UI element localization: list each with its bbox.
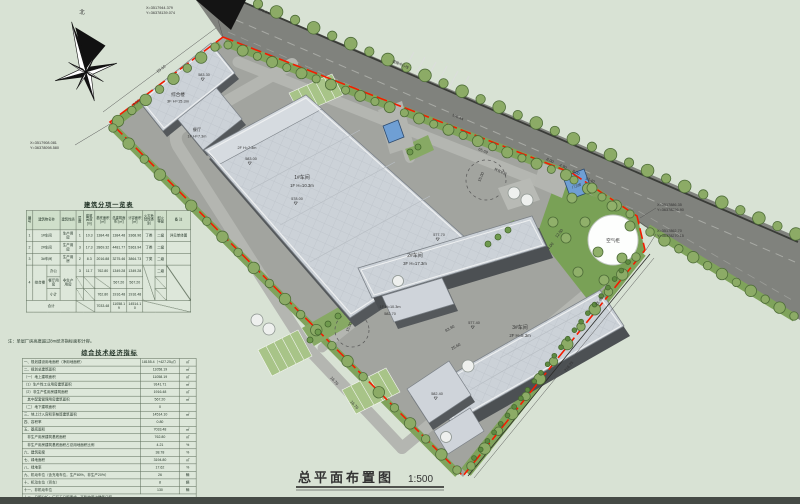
table-cell: 2016.88 bbox=[95, 253, 111, 265]
table-cell: 11058.19 bbox=[111, 300, 127, 312]
table-cell: 耐火等级 bbox=[155, 211, 166, 230]
tree-icon bbox=[518, 154, 526, 162]
tree-icon bbox=[128, 106, 137, 115]
table-cell: 0 bbox=[141, 404, 180, 412]
tree-icon bbox=[513, 110, 522, 119]
table-cell: （1）生产性工业用房建筑面积 bbox=[22, 381, 140, 389]
building-list-table: 编号建筑物名称建筑性质层数建筑高度 [m]基底面积 [㎡]总建筑面积 [㎡]计容… bbox=[26, 210, 191, 312]
table-cell: （一）地上建筑面积 bbox=[22, 374, 140, 382]
table-cell: 4481.77 bbox=[111, 242, 127, 254]
table-cell: 总建筑面积 [㎡] bbox=[111, 211, 127, 230]
table-cell: 2#车间 bbox=[33, 242, 60, 254]
table-cell: 1349.28 bbox=[127, 265, 143, 277]
tree-icon bbox=[675, 245, 684, 254]
tree-icon bbox=[545, 362, 550, 367]
tree-icon bbox=[505, 227, 511, 233]
table-cell: 层数 bbox=[76, 211, 84, 230]
tree-icon bbox=[414, 113, 425, 124]
tree-icon bbox=[325, 321, 331, 327]
tree-icon bbox=[443, 124, 454, 135]
tree-icon bbox=[774, 302, 786, 314]
table-cell: 9141.71 bbox=[141, 381, 180, 389]
tree-icon bbox=[315, 329, 321, 335]
table-cell: 1384.48 bbox=[95, 230, 111, 242]
tree-icon bbox=[472, 136, 483, 147]
label-workshop-3: 3#车间 bbox=[512, 324, 528, 331]
table-cell: 基底面积 [㎡] bbox=[95, 211, 111, 230]
tree-icon bbox=[248, 262, 260, 274]
svg-text:Y=36378270.15: Y=36378270.15 bbox=[657, 234, 684, 238]
table-cell bbox=[179, 404, 196, 412]
tree-icon bbox=[561, 233, 571, 243]
table-cell: % bbox=[179, 441, 196, 449]
table-cell bbox=[155, 277, 166, 289]
table-cell: 7033.48 bbox=[141, 426, 180, 434]
tree-icon bbox=[512, 404, 517, 409]
table-cell: 生产用房 bbox=[60, 242, 76, 254]
table-cell: 1349.28 bbox=[111, 265, 127, 277]
tree-icon bbox=[224, 41, 232, 49]
table-cell: 丁类 bbox=[143, 242, 155, 254]
label-workshop-1: 1#车间 bbox=[294, 174, 310, 181]
tree-icon bbox=[307, 21, 320, 34]
tree-icon bbox=[607, 201, 617, 211]
tree-icon bbox=[624, 158, 633, 167]
table-cell: 丁类 bbox=[143, 253, 155, 265]
table-cell: 8.3 bbox=[84, 253, 95, 265]
table-cell: 小计 bbox=[47, 289, 60, 301]
table-cell: ㎡ bbox=[179, 411, 196, 419]
table-cell: 762.80 bbox=[95, 265, 111, 277]
table-cell: 567.20 bbox=[127, 277, 143, 289]
table-cell bbox=[166, 242, 190, 254]
table-cell: 其中配套管理用房建筑面积 bbox=[22, 396, 140, 404]
tree-icon bbox=[646, 228, 655, 237]
table-cell: 762.80 bbox=[95, 289, 111, 301]
table-cell: 1916.48 bbox=[111, 289, 127, 301]
table-cell: 生产用房 bbox=[60, 253, 76, 265]
tree-icon bbox=[573, 267, 583, 277]
table-cell: 130 bbox=[141, 486, 180, 494]
tree-icon bbox=[328, 31, 337, 40]
table-cell: （二）地下建筑面积 bbox=[22, 404, 140, 412]
tree-icon bbox=[488, 143, 496, 151]
table-cell: ㎡ bbox=[179, 381, 196, 389]
table-cell: % bbox=[179, 464, 196, 472]
tree-icon bbox=[604, 148, 617, 161]
table-cell bbox=[143, 265, 155, 300]
table-cell: 3864.73 bbox=[127, 253, 143, 265]
svg-text:55.10: 55.10 bbox=[156, 63, 168, 74]
table-cell: 辆 bbox=[179, 471, 196, 479]
table-cell: 7033.48 bbox=[95, 300, 111, 312]
table-cell: 2869.32 bbox=[95, 242, 111, 254]
tree-icon bbox=[505, 413, 510, 418]
tree-icon bbox=[753, 212, 766, 225]
tree-icon bbox=[312, 75, 320, 83]
tree-icon bbox=[267, 56, 278, 67]
table-cell: 计容面积 [㎡] bbox=[127, 211, 143, 230]
tree-icon bbox=[456, 85, 469, 98]
building-list-block: 建筑分项一览表 编号建筑物名称建筑性质层数建筑高度 [m]基底面积 [㎡]总建筑… bbox=[26, 200, 191, 312]
table-cell: 3194.80 bbox=[141, 456, 180, 464]
table-cell: 18155.4（+427.25㎡） bbox=[141, 359, 180, 367]
tree-icon bbox=[485, 241, 491, 247]
table-cell: 七、绿地面积 bbox=[22, 456, 140, 464]
tree-icon bbox=[550, 126, 559, 135]
table-cell: 辆 bbox=[179, 486, 196, 494]
svg-text:582.40: 582.40 bbox=[431, 392, 443, 396]
tree-icon bbox=[567, 193, 577, 203]
tree-icon bbox=[593, 247, 603, 257]
table-cell: 11058.19 bbox=[141, 366, 180, 374]
table-cell: 火灾危险性类别 bbox=[143, 211, 155, 230]
table-cell: 五、基底面积 bbox=[22, 426, 140, 434]
table-cell: 九、机动车位（含充电车位，生产80%，非生产20%） bbox=[22, 471, 140, 479]
tree-icon bbox=[525, 387, 530, 392]
table-cell: 17.3 bbox=[84, 242, 95, 254]
table-cell: （2）非生产性用房建筑面积 bbox=[22, 389, 140, 397]
tree-icon bbox=[472, 456, 477, 461]
table-cell bbox=[76, 289, 84, 301]
table-cell: 餐厅用房 bbox=[47, 277, 60, 289]
table-cell: 八、绿地率 bbox=[22, 464, 140, 472]
table-cell: 3275.46 bbox=[111, 253, 127, 265]
tree-icon bbox=[183, 64, 192, 73]
tree-icon bbox=[270, 6, 283, 19]
tree-icon bbox=[123, 138, 135, 150]
table-cell: 1916.48 bbox=[127, 289, 143, 301]
bottom-bar bbox=[0, 497, 800, 504]
svg-text:1F H=10.3m: 1F H=10.3m bbox=[290, 183, 314, 188]
tree-icon bbox=[687, 251, 699, 263]
tree-icon bbox=[570, 176, 578, 184]
table-cell: 合计 bbox=[26, 300, 76, 312]
table-cell: 建筑性质 bbox=[60, 211, 76, 230]
table-cell bbox=[143, 300, 191, 312]
table-cell: 四、容积率 bbox=[22, 419, 140, 427]
indicators-table: 一、规划建设用地面积（净用地面积）18155.4（+427.25㎡）㎡二、规划总… bbox=[22, 358, 196, 501]
table-cell: 十一、非机动车位 bbox=[22, 486, 140, 494]
tree-icon bbox=[341, 86, 349, 94]
tree-icon bbox=[296, 68, 307, 79]
building-list-title: 建筑分项一览表 bbox=[26, 200, 191, 209]
tree-icon bbox=[547, 165, 555, 173]
sheet-title-scale: 1:500 bbox=[408, 474, 433, 485]
sheet-title-text: 总平面布置图 bbox=[298, 470, 394, 485]
tree-icon bbox=[476, 94, 485, 103]
table-cell: 二级 bbox=[155, 265, 166, 277]
tree-icon bbox=[253, 52, 261, 60]
table-cell: 辆 bbox=[179, 479, 196, 487]
tree-icon bbox=[492, 430, 497, 435]
tree-icon bbox=[531, 158, 542, 169]
table-cell: 4 bbox=[26, 265, 33, 300]
tree-icon bbox=[265, 279, 274, 288]
tree-icon bbox=[612, 277, 617, 282]
tree-icon bbox=[415, 144, 421, 150]
tree-icon bbox=[625, 221, 635, 231]
tree-icon bbox=[404, 418, 416, 430]
indicators-block: 综合技术经济指标 一、规划建设用地面积（净用地面积）18155.4（+427.2… bbox=[22, 348, 197, 502]
tree-icon bbox=[598, 193, 606, 201]
table-cell: 十、机动车位（货车） bbox=[22, 479, 140, 487]
table-cell: 11058.19 bbox=[141, 374, 180, 382]
table-cell: 14514.10 bbox=[127, 300, 143, 312]
table-cell bbox=[76, 300, 95, 312]
table-cell: 4.21 bbox=[141, 441, 180, 449]
tree-icon bbox=[237, 45, 248, 56]
sheet-title: 总平面布置图 1:500 bbox=[296, 470, 444, 490]
svg-text:1F H=7.3m: 1F H=7.3m bbox=[188, 135, 207, 139]
tree-icon bbox=[579, 319, 584, 324]
tree-icon bbox=[565, 336, 570, 341]
tree-icon bbox=[761, 295, 770, 304]
table-cell: 三、地上计入容积率核算建筑面积 bbox=[22, 411, 140, 419]
table-cell: 10.3 bbox=[84, 230, 95, 242]
table-cell bbox=[84, 277, 95, 289]
tree-icon bbox=[745, 285, 757, 297]
tree-icon bbox=[567, 133, 580, 146]
tree-icon bbox=[155, 85, 164, 94]
tree-icon bbox=[715, 196, 728, 209]
tree-icon bbox=[168, 73, 180, 85]
tree-icon bbox=[195, 52, 207, 64]
tree-icon bbox=[580, 217, 590, 227]
svg-text:X=3517944.379: X=3517944.379 bbox=[146, 6, 173, 10]
tree-icon bbox=[234, 248, 243, 257]
svg-text:Y=36378139.074: Y=36378139.074 bbox=[146, 11, 175, 15]
table-cell: 非生产用房建筑基底面积 bbox=[22, 434, 140, 442]
table-cell: ㎡ bbox=[179, 426, 196, 434]
tree-icon bbox=[732, 278, 741, 287]
tree-icon bbox=[140, 155, 149, 164]
table-cell: 综合楼 bbox=[33, 265, 47, 300]
tree-icon bbox=[355, 90, 366, 101]
svg-text:583.00: 583.00 bbox=[245, 157, 257, 161]
tree-icon bbox=[419, 69, 432, 82]
table-cell: 38.78 bbox=[141, 449, 180, 457]
table-cell bbox=[76, 277, 84, 289]
table-cell: 1916.48 bbox=[141, 389, 180, 397]
table-cell: ㎡ bbox=[179, 396, 196, 404]
table-cell: 二、规划总建筑面积 bbox=[22, 366, 140, 374]
tree-icon bbox=[736, 206, 745, 215]
table-cell: 26 bbox=[141, 471, 180, 479]
table-cell: 567.20 bbox=[111, 277, 127, 289]
table-cell: % bbox=[179, 449, 196, 457]
tree-icon bbox=[430, 120, 438, 128]
tree-icon bbox=[502, 147, 513, 158]
table-cell: 1 bbox=[26, 230, 33, 242]
table-cell: 3 bbox=[76, 242, 84, 254]
tree-icon bbox=[436, 449, 448, 461]
table-cell: 762.80 bbox=[141, 434, 180, 442]
tree-icon bbox=[790, 228, 800, 241]
tree-icon bbox=[171, 186, 180, 195]
tree-icon bbox=[328, 341, 337, 350]
table-cell: 11.7 bbox=[84, 265, 95, 277]
table-cell: 1#车间 bbox=[33, 230, 60, 242]
table-cell bbox=[166, 253, 190, 265]
tree-icon bbox=[390, 404, 399, 413]
svg-text:577.40: 577.40 bbox=[468, 321, 480, 325]
svg-text:582.70: 582.70 bbox=[384, 312, 396, 316]
tree-icon bbox=[203, 217, 212, 226]
tree-icon bbox=[154, 169, 166, 181]
tree-icon bbox=[371, 97, 379, 105]
site-plan-sheet: 空气柜 门卫房 55.10 9.50 65.69 216.25 16.79 16… bbox=[0, 0, 800, 504]
tree-icon bbox=[400, 109, 408, 117]
tree-icon bbox=[552, 353, 557, 358]
tree-icon bbox=[549, 357, 558, 366]
tree-icon bbox=[619, 268, 624, 273]
table-cell: 二级 bbox=[155, 253, 166, 265]
svg-text:2F H=8.3m: 2F H=8.3m bbox=[509, 333, 531, 338]
table-cell: 非生产用房 bbox=[60, 265, 76, 300]
table-cell: 丁类 bbox=[143, 230, 155, 242]
indicators-title: 综合技术经济指标 bbox=[22, 348, 197, 357]
north-compass: 北 bbox=[41, 8, 125, 110]
tree-icon bbox=[626, 210, 634, 218]
svg-text:1F H=10.3m: 1F H=10.3m bbox=[380, 305, 401, 309]
table-cell bbox=[155, 289, 166, 301]
table-cell: 二级 bbox=[155, 230, 166, 242]
air-tank-label: 空气柜 bbox=[606, 237, 620, 244]
table-cell: 3368.96 bbox=[127, 230, 143, 242]
table-cell: 14514.10 bbox=[141, 411, 180, 419]
tree-icon bbox=[493, 101, 506, 114]
tree-icon bbox=[211, 43, 220, 52]
tree-icon bbox=[485, 439, 490, 444]
tree-icon bbox=[453, 466, 462, 475]
table-cell: 1 bbox=[76, 230, 84, 242]
tree-icon bbox=[359, 372, 368, 381]
table-cell: ㎡ bbox=[179, 366, 196, 374]
tree-icon bbox=[342, 355, 354, 367]
tree-icon bbox=[365, 47, 374, 56]
svg-text:Y=36378256.90: Y=36378256.90 bbox=[657, 208, 684, 212]
svg-text:3F H=17.3m: 3F H=17.3m bbox=[403, 261, 427, 266]
table-cell bbox=[179, 419, 196, 427]
tree-icon bbox=[626, 260, 631, 265]
tree-icon bbox=[290, 15, 299, 24]
tree-icon bbox=[572, 328, 577, 333]
tree-icon bbox=[518, 396, 523, 401]
tree-icon bbox=[530, 117, 543, 130]
tree-icon bbox=[678, 180, 691, 193]
tree-icon bbox=[699, 190, 708, 199]
svg-text:2F H=7.3m: 2F H=7.3m bbox=[238, 146, 257, 150]
table-cell: 建筑高度 [m] bbox=[84, 211, 95, 230]
table-cell: 17.62 bbox=[141, 464, 180, 472]
tree-icon bbox=[384, 102, 395, 113]
table-cell: 5363.94 bbox=[127, 242, 143, 254]
tree-icon bbox=[790, 312, 799, 321]
table-cell: 办公 bbox=[47, 265, 60, 277]
table-cell: ㎡ bbox=[179, 456, 196, 464]
svg-text:X=3517886.35: X=3517886.35 bbox=[657, 203, 682, 207]
table-cell: ㎡ bbox=[179, 374, 196, 382]
tree-icon bbox=[325, 79, 336, 90]
tree-icon bbox=[539, 370, 544, 375]
tree-icon bbox=[407, 149, 413, 155]
table-cell: ㎡ bbox=[179, 434, 196, 442]
table-cell: 六、建筑密度 bbox=[22, 449, 140, 457]
tree-icon bbox=[296, 310, 305, 319]
svg-text:577.70: 577.70 bbox=[433, 233, 445, 237]
table-cell: 备 注 bbox=[166, 211, 190, 230]
tree-icon bbox=[587, 183, 597, 193]
tree-icon bbox=[217, 231, 229, 243]
tree-icon bbox=[140, 94, 152, 106]
tree-icon bbox=[478, 447, 483, 452]
table-cell: 一、规划建设用地面积（净用地面积） bbox=[22, 359, 140, 367]
table-cell: 2 bbox=[76, 253, 84, 265]
table-cell: 2 bbox=[26, 242, 33, 254]
svg-text:X=3517908.081: X=3517908.081 bbox=[30, 141, 57, 145]
table-cell: ㎡ bbox=[179, 389, 196, 397]
table-cell bbox=[166, 265, 190, 300]
table-cell: 非生产用房建筑基底面积占总用地面积比例 bbox=[22, 441, 140, 449]
tree-icon bbox=[641, 164, 654, 177]
tree-icon bbox=[632, 253, 641, 262]
table-cell: 编号 bbox=[26, 211, 33, 230]
tree-icon bbox=[548, 217, 558, 227]
label-workshop-2: 2#车间 bbox=[407, 252, 423, 259]
table-cell: 详见单体图 bbox=[166, 230, 190, 242]
tree-icon bbox=[467, 462, 476, 471]
tree-icon bbox=[344, 37, 357, 50]
tree-icon bbox=[585, 311, 590, 316]
table-cell: 生产用房 bbox=[60, 230, 76, 242]
tree-icon bbox=[716, 268, 728, 280]
tree-icon bbox=[335, 313, 341, 319]
table-cell: ㎡ bbox=[179, 359, 196, 367]
tree-icon bbox=[109, 124, 118, 133]
table-cell bbox=[95, 277, 111, 289]
tree-icon bbox=[283, 64, 291, 72]
label-zonghelou: 综合楼 bbox=[171, 91, 185, 98]
tree-icon bbox=[703, 261, 712, 270]
tree-icon bbox=[459, 131, 467, 139]
tree-icon bbox=[373, 387, 385, 399]
table-cell: 建筑物名称 bbox=[33, 211, 60, 230]
svg-text:578.00: 578.00 bbox=[291, 197, 303, 201]
table-cell: 1384.48 bbox=[111, 230, 127, 242]
table-cell: 3 bbox=[26, 253, 33, 265]
table-cell: 567.20 bbox=[141, 396, 180, 404]
svg-text:X=3517862.70: X=3517862.70 bbox=[657, 229, 682, 233]
label-canting: 餐厅 bbox=[193, 126, 201, 133]
table-cell: 3#车间 bbox=[33, 253, 60, 265]
tree-icon bbox=[661, 174, 670, 183]
svg-text:Y=36378098.580: Y=36378098.580 bbox=[30, 146, 59, 150]
table-cell: 二级 bbox=[155, 242, 166, 254]
tree-icon bbox=[498, 422, 503, 427]
north-label: 北 bbox=[79, 8, 85, 16]
tree-icon bbox=[606, 285, 611, 290]
tree-icon bbox=[495, 234, 501, 240]
building-list-note: 注：单层厂房高度超过8m经济指标面积计容。 bbox=[8, 336, 196, 344]
tree-icon bbox=[279, 293, 291, 305]
tree-icon bbox=[559, 345, 564, 350]
table-cell bbox=[84, 289, 95, 301]
tree-icon bbox=[587, 142, 596, 151]
tree-icon bbox=[307, 337, 313, 343]
table-cell: 8 bbox=[141, 479, 180, 487]
tree-icon bbox=[439, 79, 448, 88]
